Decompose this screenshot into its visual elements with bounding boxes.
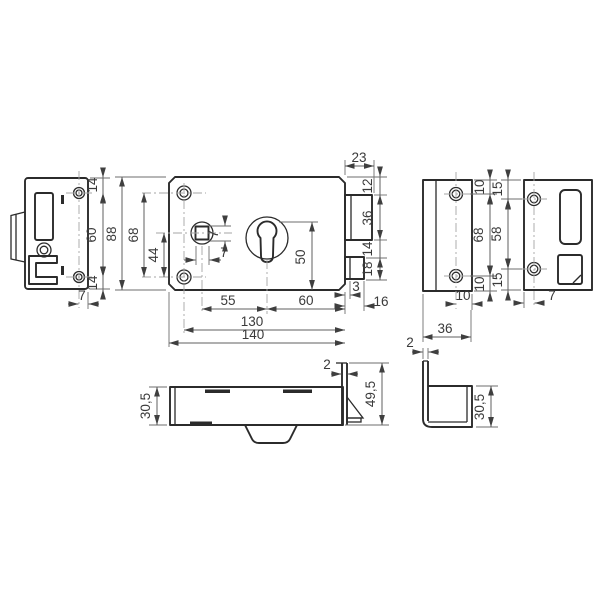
dim-latch-to-bolt: 14 (360, 241, 375, 257)
dim-bolt-throw: 16 (373, 294, 388, 309)
dim-latch-projection: 23 (351, 150, 366, 165)
dim-hole-spacing: 60 (84, 227, 99, 242)
dim-depth: 30,5 (472, 394, 487, 420)
dim-hole-to-bottom: 10 (472, 276, 487, 291)
dim-hole-spacing: 68 (471, 227, 486, 242)
lock-technical-drawing: 14 60 14 7 (0, 0, 600, 600)
dim-spindle-to-cylinder: 55 (220, 293, 235, 308)
dim-hole-to-bottom: 14 (85, 275, 100, 291)
drawing-canvas: 14 60 14 7 (0, 0, 600, 600)
dim-bolt-face: 3 (352, 279, 360, 294)
dim-case-depth: 30,5 (138, 393, 153, 419)
dim-top-to-latch: 12 (360, 178, 375, 193)
dim-edge-to-axis: 7 (548, 288, 556, 303)
dim-sheet-thickness: 2 (406, 335, 414, 350)
dim-faceplate-thickness: 2 (323, 357, 331, 372)
dim-top-to-hole: 10 (472, 179, 487, 194)
dim-latch-height: 36 (360, 210, 375, 225)
case-notch (205, 390, 230, 394)
dim-spindle-width: 7 (220, 245, 228, 260)
dim-cylinder-to-edge: 60 (298, 293, 313, 308)
dim-width: 36 (437, 321, 452, 336)
case-notch (283, 390, 312, 394)
dim-total-width: 140 (242, 327, 265, 342)
dim-screw-hole-spacing: 68 (126, 227, 141, 242)
slot (61, 195, 64, 204)
slot (61, 266, 64, 275)
dim-top-to-hole: 15 (490, 181, 505, 196)
dim-total-height: 88 (104, 226, 119, 241)
dim-top-to-hole: 14 (85, 177, 100, 193)
dim-axis-to-edge: 10 (455, 288, 470, 303)
dim-spindle-height: 7 (206, 230, 221, 238)
dim-hole-to-bottom: 15 (490, 272, 505, 287)
dim-axis-to-edge: 7 (78, 288, 86, 303)
dim-cylinder-to-bottom: 50 (293, 249, 308, 264)
dim-hole-spacing: 58 (489, 226, 504, 241)
dim-faceplate-height: 49,5 (363, 381, 378, 407)
dim-spindle-to-screw: 44 (146, 247, 161, 263)
dim-bolt-height: 18 (360, 261, 375, 276)
case-tab (190, 422, 212, 426)
